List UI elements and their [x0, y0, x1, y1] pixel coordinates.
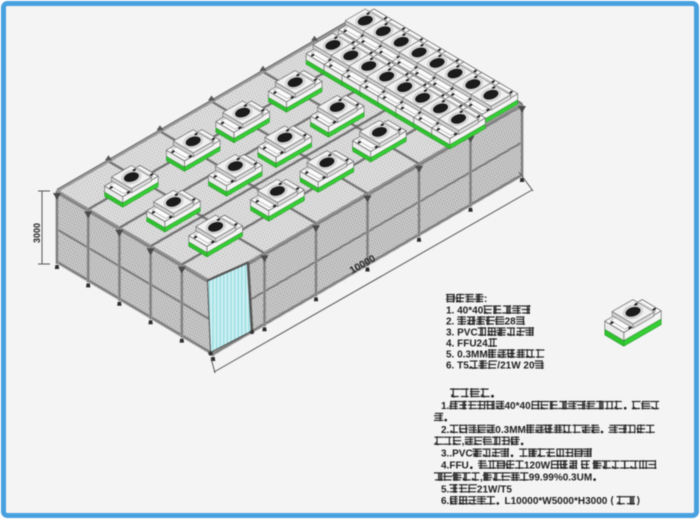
svg-text:4. FFU24: 4. FFU24: [446, 339, 488, 350]
svg-text:/21W 20: /21W 20: [497, 361, 535, 372]
svg-text:6. T5: 6. T5: [446, 361, 469, 372]
svg-text:5.: 5.: [441, 484, 450, 495]
svg-text:99.99%0.3UM: 99.99%0.3UM: [529, 472, 592, 483]
svg-text:2.: 2.: [441, 425, 450, 436]
svg-text:3000: 3000: [32, 223, 42, 243]
svg-text:0.3MM: 0.3MM: [495, 425, 526, 436]
svg-text::: :: [484, 294, 487, 305]
svg-text:6.: 6.: [441, 496, 450, 507]
svg-text:120W: 120W: [524, 461, 551, 472]
svg-text:2.: 2.: [446, 317, 457, 328]
svg-text:,: ,: [462, 437, 465, 448]
svg-text:1. 40*40: 1. 40*40: [446, 306, 484, 317]
svg-text:40*40: 40*40: [505, 401, 532, 412]
svg-text:3. PVC: 3. PVC: [446, 328, 478, 339]
svg-text:4.FFU: 4.FFU: [441, 461, 469, 472]
svg-text:3..PVC: 3..PVC: [441, 449, 473, 460]
svg-text:5. 0.3MM: 5. 0.3MM: [446, 350, 488, 361]
svg-text:1.: 1.: [441, 401, 450, 412]
svg-text:,: ,: [480, 472, 483, 483]
svg-text:21W/T5: 21W/T5: [477, 484, 512, 495]
svg-text:L10000*W5000*H3000: L10000*W5000*H3000: [505, 496, 608, 507]
svg-text:28: 28: [505, 317, 517, 328]
